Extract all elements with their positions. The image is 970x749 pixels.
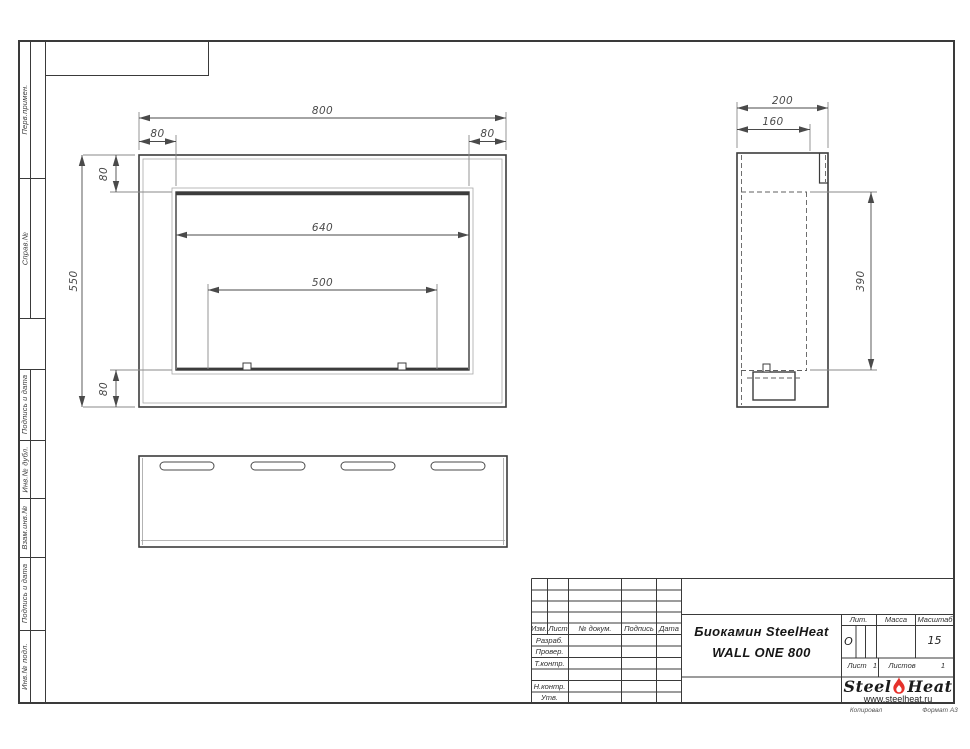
- tb-mass-label: Масса: [878, 615, 914, 625]
- tb-row-nkontr: Н.контр.: [532, 682, 568, 692]
- sidebar-label-inv-podl: Инв.№ подл.: [19, 630, 30, 703]
- dim-side-overall-depth: 200: [761, 95, 805, 107]
- sidebar-label-perv-primen: Перв.примен.: [19, 41, 30, 178]
- sidebar-label-sprav-no: Справ.№: [19, 178, 30, 318]
- dim-front-overall-width: 800: [301, 105, 345, 117]
- dim-front-flange-left: 80: [136, 128, 180, 140]
- dim-front-overall-height: 550: [68, 259, 80, 303]
- bottom-view-inner-edges: [141, 458, 505, 545]
- tb-scale-value: 15: [916, 635, 953, 646]
- tb-header-izm: Изм.: [531, 624, 547, 634]
- tb-row-razrab: Разраб.: [532, 636, 568, 646]
- tb-sheet-number: 1: [869, 661, 881, 671]
- flame-icon: [892, 677, 906, 694]
- format-label: Формат А3: [910, 707, 970, 716]
- tb-sheets-total: 1: [937, 661, 949, 671]
- document-title-line2: WALL ONE 800: [683, 644, 840, 660]
- tb-header-data: Дата: [657, 624, 681, 634]
- sidebar-label-podpis-data-2: Подпись и дата: [19, 557, 30, 630]
- tb-sheets-label: Листов: [885, 661, 919, 671]
- dim-front-flange-right: 80: [466, 128, 510, 140]
- drawing-sheet: Перв.примен. Справ.№ Подпись и дата Инв.…: [0, 0, 970, 749]
- tb-lit-value: О: [842, 636, 855, 647]
- logo-website: www.steelheat.ru: [843, 694, 953, 704]
- sheet-frame: [19, 41, 954, 703]
- tb-row-tkontr: Т.контр.: [532, 659, 568, 669]
- tb-row-prover: Провер.: [532, 647, 568, 657]
- tb-header-num-dokum: № докум.: [570, 624, 620, 634]
- gost-side-column: [19, 41, 209, 703]
- extension-lines: [83, 102, 877, 407]
- side-view-hidden-lines: [741, 155, 826, 405]
- dim-front-flange-bottom: 80: [98, 367, 110, 411]
- steelheat-logo: Steel Heat: [843, 678, 953, 694]
- tb-scale-label: Масштаб: [916, 615, 954, 625]
- logo-word-heat: Heat: [907, 677, 952, 696]
- document-title-line1: Биокамин SteelHeat: [683, 624, 840, 640]
- logo-word-steel: Steel: [844, 677, 892, 696]
- dim-front-opening-width: 640: [301, 222, 345, 234]
- bottom-view: [139, 456, 507, 547]
- dim-side-inner-depth: 160: [751, 117, 795, 129]
- dim-side-opening-height: 390: [855, 259, 867, 303]
- sidebar-label-podpis-data-1: Подпись и дата: [19, 369, 30, 440]
- sidebar-label-inv-dubl: Инв.№ дубл.: [19, 440, 30, 498]
- tb-lit-label: Лит.: [843, 615, 874, 625]
- tb-row-utv: Утв.: [532, 693, 568, 703]
- dim-front-flange-top: 80: [98, 152, 110, 196]
- tb-header-podpis: Подпись: [622, 624, 656, 634]
- tb-header-list: Лист: [548, 624, 568, 634]
- kopiroval-label: Копировал: [836, 707, 896, 716]
- side-view: [737, 153, 828, 407]
- dim-front-burner-width: 500: [301, 277, 345, 289]
- tb-sheet-label: Лист: [843, 661, 871, 671]
- sidebar-label-vzam-inv: Взам.инв.№: [19, 498, 30, 557]
